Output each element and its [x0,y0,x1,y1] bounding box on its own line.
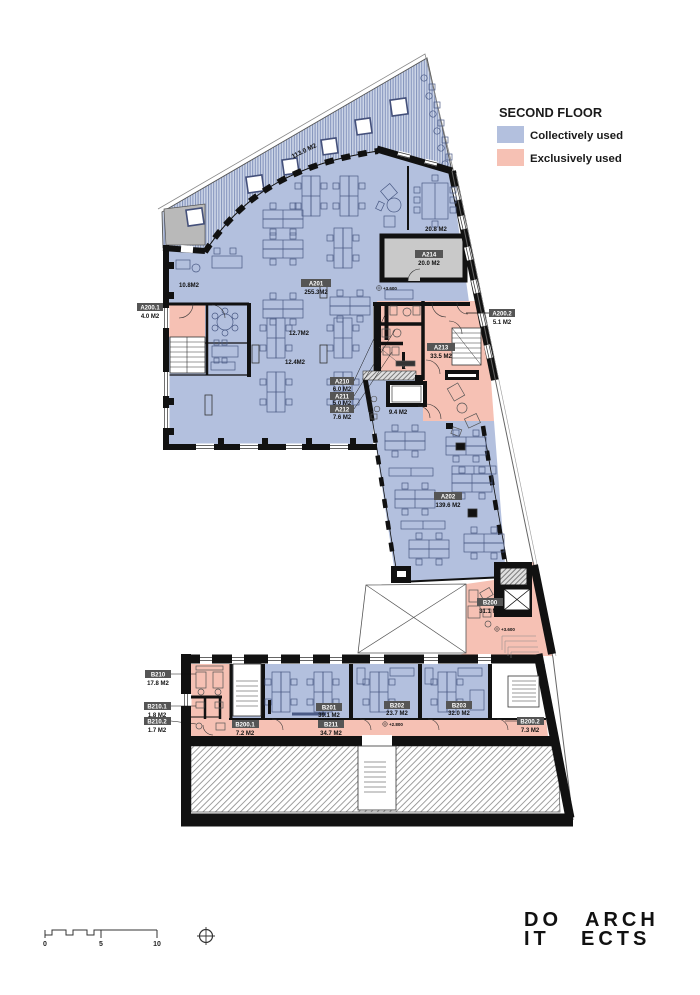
svg-text:A201: A201 [309,282,324,288]
svg-text:Collectively used: Collectively used [530,130,623,142]
svg-text:4.0 M2: 4.0 M2 [141,314,160,320]
svg-text:12.4M2: 12.4M2 [285,360,306,366]
svg-text:IT: IT [524,928,550,950]
svg-text:B202: B202 [390,704,405,710]
svg-text:B203: B203 [452,704,467,710]
svg-text:7.6 M2: 7.6 M2 [333,415,352,421]
svg-text:17.8 M2: 17.8 M2 [147,681,169,687]
svg-text:12.7M2: 12.7M2 [289,331,310,337]
svg-text:A212: A212 [335,408,350,414]
svg-text:10: 10 [153,941,161,948]
svg-text:39.1 M2: 39.1 M2 [318,713,340,719]
svg-text:B201: B201 [322,706,337,712]
svg-text:33.5 M2: 33.5 M2 [430,354,452,360]
svg-text:A214: A214 [422,253,437,259]
svg-text:B200: B200 [483,601,498,607]
svg-text:A200.2: A200.2 [492,312,512,318]
svg-text:SECOND FLOOR: SECOND FLOOR [499,105,602,120]
svg-text:B210: B210 [151,673,166,679]
svg-text:A211: A211 [335,395,350,401]
svg-text:+3.600: +3.600 [501,627,515,632]
svg-text:A200.1: A200.1 [140,306,160,312]
svg-text:0: 0 [43,941,47,948]
svg-text:31.1 M2: 31.1 M2 [479,609,501,615]
svg-text:5: 5 [99,941,103,948]
svg-text:+2.800: +2.800 [389,722,403,727]
svg-text:23.7 M2: 23.7 M2 [386,711,408,717]
svg-text:B210.1: B210.1 [147,705,167,711]
svg-text:1.7 M2: 1.7 M2 [148,728,167,734]
svg-text:B200.2: B200.2 [520,720,540,726]
svg-text:+3.600: +3.600 [383,286,397,291]
svg-text:B200.1: B200.1 [235,723,255,729]
svg-text:A213: A213 [434,346,449,352]
svg-text:Exclusively used: Exclusively used [530,153,622,165]
svg-text:ECTS: ECTS [581,928,650,950]
svg-text:A210: A210 [335,380,350,386]
svg-text:32.0 M2: 32.0 M2 [448,711,470,717]
svg-text:B210.2: B210.2 [147,720,167,726]
svg-text:20.0 M2: 20.0 M2 [418,261,440,267]
svg-text:5.1 M2: 5.1 M2 [493,320,512,326]
svg-text:34.7 M2: 34.7 M2 [320,731,342,737]
svg-text:7.2 M2: 7.2 M2 [236,731,255,737]
svg-text:10.8M2: 10.8M2 [179,283,200,289]
svg-text:9.4 M2: 9.4 M2 [389,410,408,416]
svg-text:B211: B211 [324,723,339,729]
svg-text:139.6 M2: 139.6 M2 [435,503,461,509]
svg-text:A202: A202 [441,495,456,501]
svg-text:20.8 M2: 20.8 M2 [425,227,447,233]
svg-text:255.3M2: 255.3M2 [304,290,328,296]
svg-text:7.3 M2: 7.3 M2 [521,728,540,734]
